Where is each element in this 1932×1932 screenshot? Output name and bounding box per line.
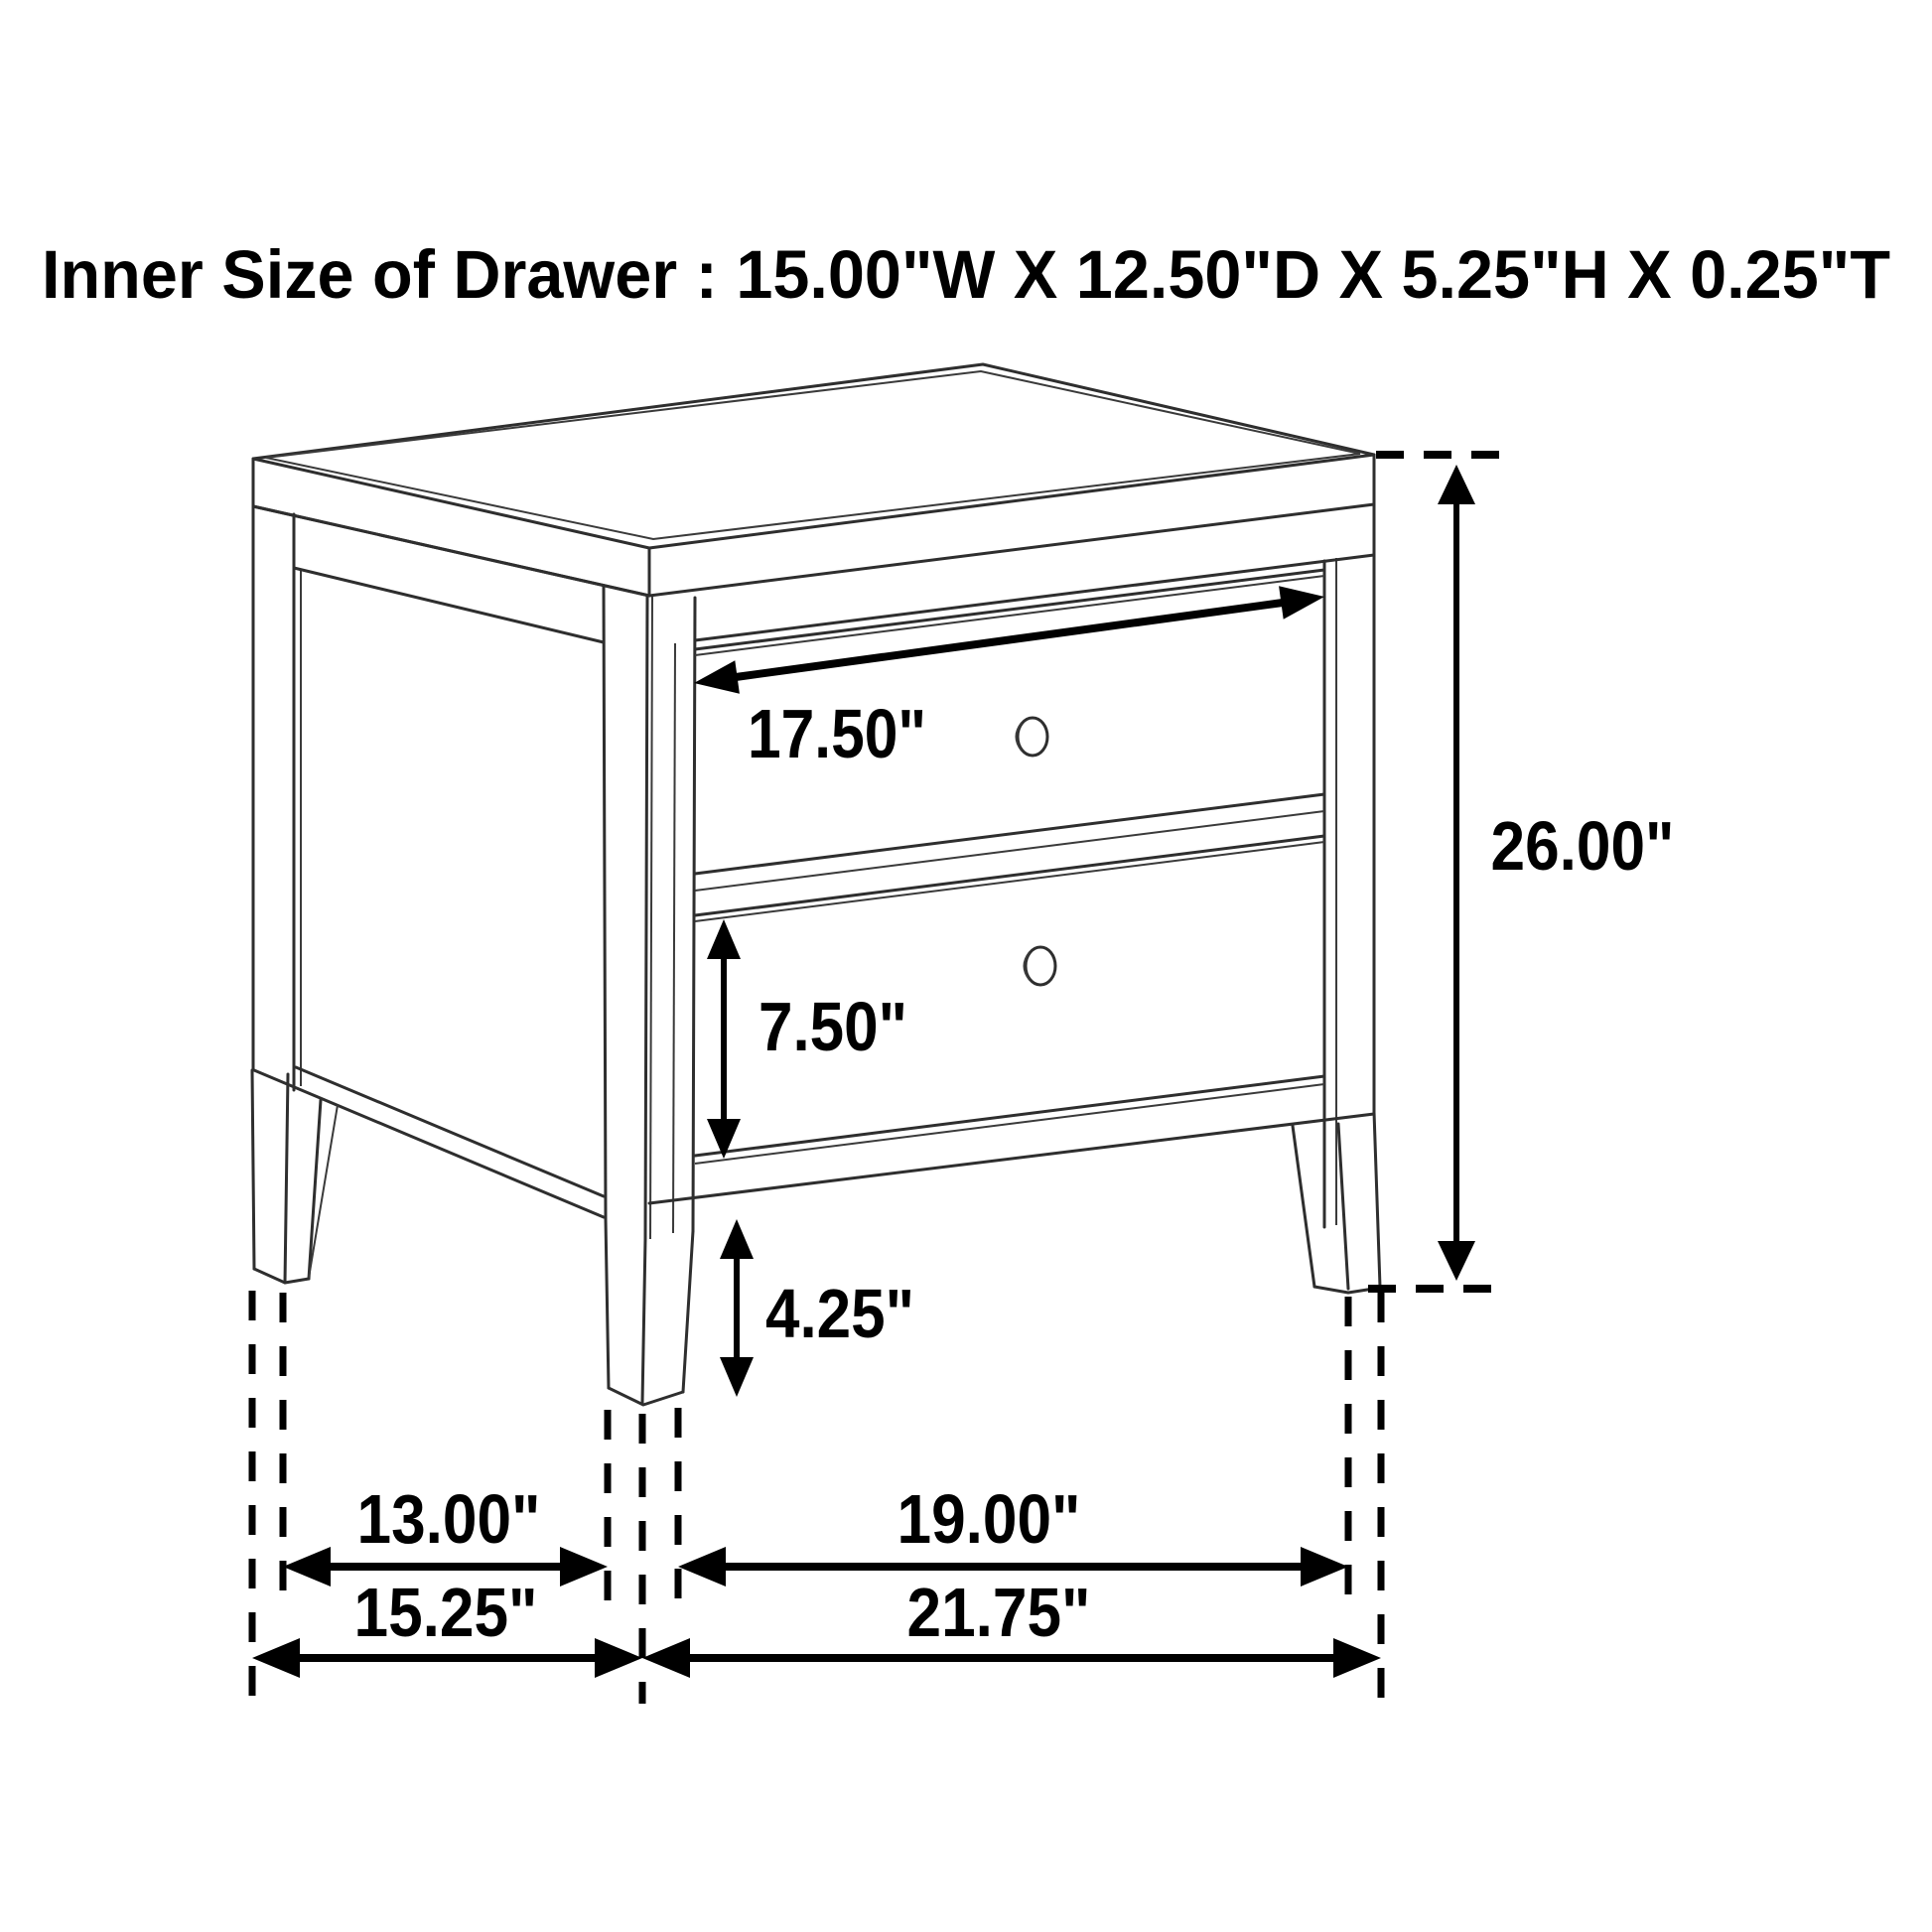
dim-overall-height: 26.00" (1438, 465, 1675, 1281)
drawer-knob-bottom-icon (1025, 947, 1056, 985)
nightstand-drawing (252, 364, 1380, 1405)
side-panel (253, 506, 604, 1217)
dim-label-overall-depth: 15.25" (354, 1574, 538, 1651)
back-left-leg (252, 1070, 338, 1283)
dim-overall-width: 21.75" (642, 1574, 1381, 1678)
furniture-dimension-diagram: Inner Size of Drawer : 15.00"W X 12.50"D… (0, 0, 1932, 1932)
drawer-fronts (649, 555, 1374, 1203)
table-top (253, 364, 1374, 596)
drawer-knob-top-icon (1017, 718, 1048, 756)
dim-side-leg-span: 13.00" (283, 1480, 608, 1587)
front-left-post (604, 586, 695, 1239)
page-title: Inner Size of Drawer : 15.00"W X 12.50"D… (42, 236, 1890, 313)
dim-front-leg-span: 19.00" (678, 1480, 1348, 1587)
diagram-canvas: Inner Size of Drawer : 15.00"W X 12.50"D… (0, 0, 1932, 1932)
dim-overall-depth: 15.25" (252, 1574, 642, 1678)
dim-label-leg-height: 4.25" (765, 1275, 914, 1352)
dim-label-front-leg-span: 19.00" (897, 1480, 1081, 1558)
dim-label-side-leg-span: 13.00" (357, 1480, 541, 1558)
dim-label-overall-height: 26.00" (1491, 807, 1675, 885)
dim-drawer-front-height: 7.50" (707, 919, 907, 1159)
dim-leg-height: 4.25" (720, 1219, 914, 1397)
front-left-leg (606, 1219, 693, 1405)
dim-label-drawer-width: 17.50" (748, 695, 926, 772)
dim-label-overall-width: 21.75" (907, 1574, 1091, 1651)
dim-label-drawer-front-height: 7.50" (759, 988, 907, 1065)
dim-drawer-width: 17.50" (694, 586, 1324, 772)
